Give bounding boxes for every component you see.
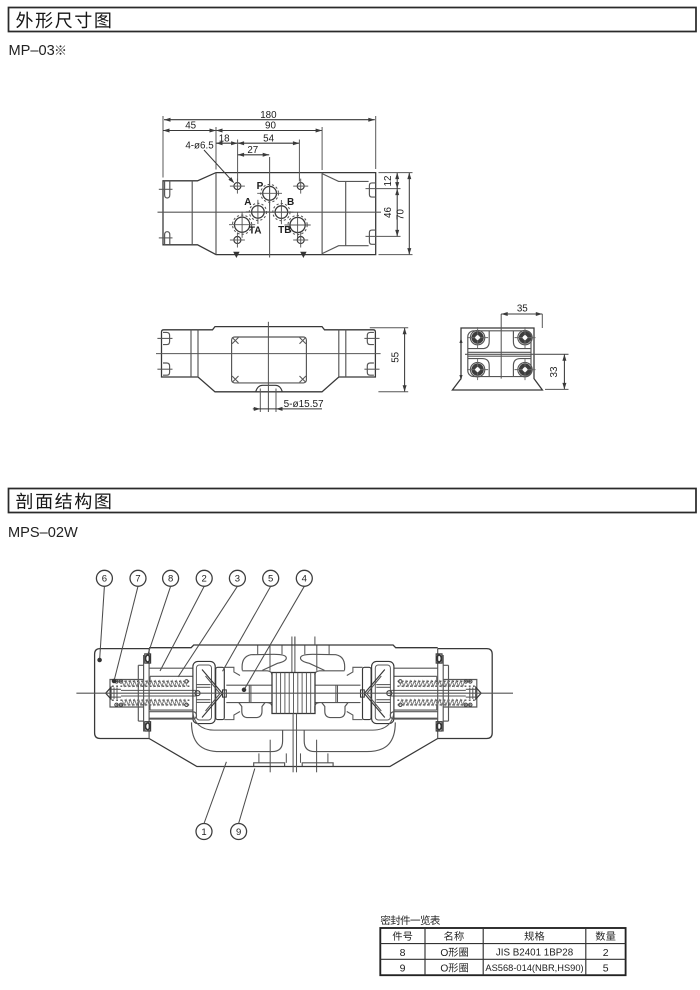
svg-text:180: 180 [260, 110, 277, 121]
svg-text:2: 2 [603, 947, 609, 959]
svg-text:54: 54 [263, 133, 274, 144]
svg-text:3: 3 [235, 574, 240, 585]
svg-text:B: B [287, 197, 294, 208]
svg-text:8: 8 [400, 947, 406, 959]
svg-text:8: 8 [168, 574, 173, 585]
svg-text:45: 45 [185, 121, 196, 132]
svg-text:JIS B2401 1BP28: JIS B2401 1BP28 [496, 947, 574, 958]
svg-text:1: 1 [201, 827, 206, 838]
svg-text:A: A [244, 197, 251, 208]
svg-text:18: 18 [219, 133, 230, 144]
svg-text:55: 55 [390, 351, 401, 362]
svg-text:O: O [440, 948, 448, 959]
svg-text:O: O [440, 963, 448, 974]
svg-text:4: 4 [302, 574, 307, 585]
svg-text:P: P [257, 181, 264, 192]
svg-text:46: 46 [383, 207, 394, 218]
svg-text:2: 2 [202, 574, 207, 585]
svg-text:AS568-014(NBR,HS90): AS568-014(NBR,HS90) [485, 963, 583, 973]
svg-text:7: 7 [135, 574, 140, 585]
svg-text:9: 9 [400, 962, 406, 974]
svg-text:4-ø6.5: 4-ø6.5 [185, 140, 214, 151]
svg-text:5: 5 [603, 962, 609, 974]
svg-text:6: 6 [102, 574, 107, 585]
svg-text:5-ø15.57: 5-ø15.57 [284, 399, 324, 410]
svg-text:12: 12 [383, 176, 394, 187]
svg-text:5: 5 [268, 574, 273, 585]
svg-text:70: 70 [396, 209, 407, 220]
svg-text:TA: TA [249, 226, 262, 237]
svg-text:9: 9 [236, 827, 241, 838]
svg-text:33: 33 [549, 366, 560, 377]
svg-text:90: 90 [265, 121, 276, 132]
svg-text:MP–03: MP–03 [9, 43, 55, 59]
svg-text:35: 35 [517, 304, 528, 315]
svg-text:TB: TB [278, 225, 291, 236]
svg-text:MPS–02W: MPS–02W [8, 525, 78, 541]
svg-text:27: 27 [247, 145, 258, 156]
